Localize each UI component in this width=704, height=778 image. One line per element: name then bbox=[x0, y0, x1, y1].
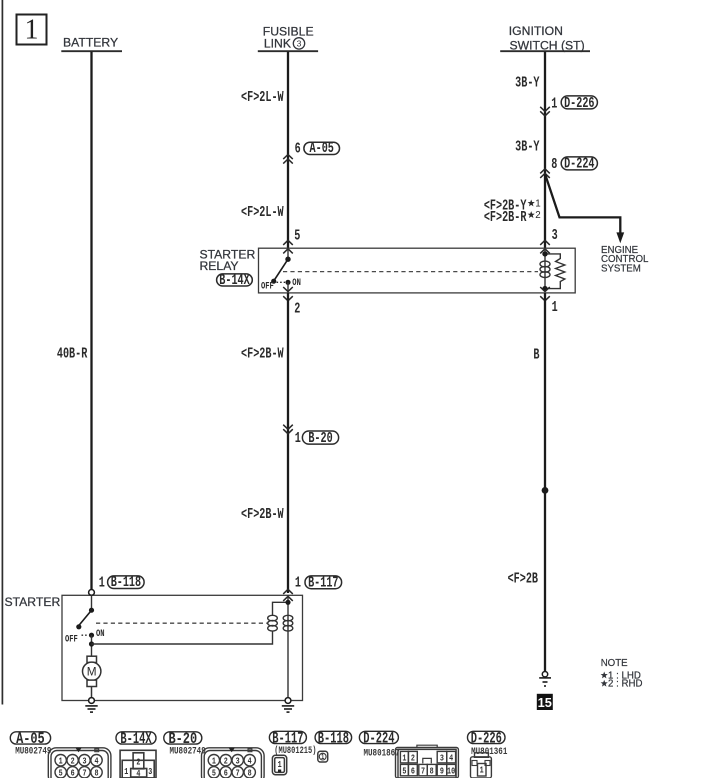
svg-text:STARTER: STARTER bbox=[5, 595, 61, 609]
svg-text:4: 4 bbox=[136, 769, 140, 778]
svg-text:3: 3 bbox=[82, 756, 86, 766]
svg-text:MU801867: MU801867 bbox=[364, 748, 400, 759]
svg-text:MU801361: MU801361 bbox=[471, 746, 507, 757]
svg-text:B-117: B-117 bbox=[308, 574, 338, 591]
svg-text:2: 2 bbox=[411, 754, 415, 764]
svg-text:<F>2L-W: <F>2L-W bbox=[241, 203, 284, 220]
svg-text:10: 10 bbox=[447, 767, 455, 777]
svg-text:6: 6 bbox=[71, 769, 75, 778]
svg-text:1: 1 bbox=[295, 429, 301, 446]
svg-text:5: 5 bbox=[402, 767, 406, 777]
svg-text:6: 6 bbox=[295, 140, 301, 157]
svg-text:IGNITION: IGNITION bbox=[509, 24, 563, 38]
svg-text:2: 2 bbox=[294, 300, 300, 317]
svg-text:1: 1 bbox=[278, 760, 282, 770]
svg-text:40B-R: 40B-R bbox=[57, 345, 88, 362]
svg-text:1: 1 bbox=[25, 15, 39, 46]
svg-text:6: 6 bbox=[224, 769, 228, 778]
svg-text:3: 3 bbox=[236, 756, 240, 766]
svg-text:8: 8 bbox=[551, 155, 557, 172]
svg-text:B-14X: B-14X bbox=[120, 730, 151, 748]
svg-text:2: 2 bbox=[136, 758, 140, 768]
svg-text:M: M bbox=[87, 665, 97, 679]
svg-text:2: 2 bbox=[535, 210, 540, 221]
svg-text:3B-Y: 3B-Y bbox=[515, 137, 540, 154]
svg-text:MU802749: MU802749 bbox=[170, 746, 206, 757]
svg-text:ON: ON bbox=[292, 277, 301, 289]
svg-text:BATTERY: BATTERY bbox=[63, 35, 118, 49]
svg-text:1: 1 bbox=[535, 199, 540, 210]
svg-text:SYSTEM: SYSTEM bbox=[601, 264, 641, 275]
svg-text:4: 4 bbox=[248, 756, 252, 766]
svg-text:MU802749: MU802749 bbox=[15, 746, 51, 757]
svg-text:ON: ON bbox=[96, 628, 105, 640]
svg-text:1: 1 bbox=[402, 754, 406, 764]
svg-text:4: 4 bbox=[449, 754, 453, 764]
svg-text:A-05: A-05 bbox=[310, 139, 334, 156]
svg-text:5: 5 bbox=[59, 769, 63, 778]
svg-text:8: 8 bbox=[248, 769, 252, 778]
svg-text:D-226: D-226 bbox=[564, 94, 594, 111]
svg-text:6: 6 bbox=[411, 767, 415, 777]
svg-text:<F>2B-W: <F>2B-W bbox=[241, 505, 284, 522]
svg-text:5: 5 bbox=[294, 227, 300, 244]
svg-text:D-224: D-224 bbox=[363, 730, 394, 748]
svg-text:8: 8 bbox=[94, 769, 98, 778]
svg-text:D-224: D-224 bbox=[564, 155, 595, 172]
svg-text:2: 2 bbox=[71, 756, 75, 766]
svg-text:<F>2B-R: <F>2B-R bbox=[484, 208, 527, 225]
svg-text:15: 15 bbox=[538, 695, 552, 710]
svg-text:1: 1 bbox=[212, 756, 216, 766]
svg-text:B-14X: B-14X bbox=[219, 271, 250, 288]
svg-text:3: 3 bbox=[552, 226, 558, 243]
svg-text:2: 2 bbox=[224, 756, 228, 766]
svg-text:5: 5 bbox=[212, 769, 216, 778]
svg-text:3: 3 bbox=[148, 767, 152, 777]
svg-text:B-20: B-20 bbox=[308, 429, 332, 446]
svg-text:7: 7 bbox=[82, 769, 86, 778]
svg-text:1: 1 bbox=[124, 767, 128, 777]
svg-text:1: 1 bbox=[295, 574, 301, 591]
svg-text:B-118: B-118 bbox=[318, 730, 349, 748]
svg-text:1: 1 bbox=[59, 756, 63, 766]
svg-text:<F>2B: <F>2B bbox=[508, 569, 539, 586]
svg-text:7: 7 bbox=[236, 769, 240, 778]
svg-text:3: 3 bbox=[297, 39, 302, 49]
svg-text:4: 4 bbox=[94, 756, 98, 766]
svg-text:B: B bbox=[533, 346, 539, 363]
svg-text:<F>2L-W: <F>2L-W bbox=[241, 88, 284, 105]
svg-text:D-226: D-226 bbox=[471, 730, 502, 748]
svg-text:OFF: OFF bbox=[65, 633, 78, 645]
svg-text:1: 1 bbox=[552, 298, 558, 315]
svg-text:9: 9 bbox=[440, 767, 444, 777]
svg-text:OFF: OFF bbox=[261, 281, 274, 293]
svg-text:3: 3 bbox=[440, 754, 444, 764]
svg-text:NOTE: NOTE bbox=[601, 658, 628, 669]
svg-text:LINK: LINK bbox=[264, 37, 291, 51]
svg-text:SWITCH (ST): SWITCH (ST) bbox=[510, 38, 585, 52]
svg-text:1: 1 bbox=[321, 753, 324, 762]
svg-text:<F>2B-W: <F>2B-W bbox=[241, 345, 284, 362]
svg-text:3B-Y: 3B-Y bbox=[515, 74, 540, 91]
svg-text:1: 1 bbox=[551, 95, 557, 112]
svg-text:8: 8 bbox=[430, 767, 434, 777]
svg-text:B-118: B-118 bbox=[111, 573, 141, 590]
svg-text:2 : RHD: 2 : RHD bbox=[608, 679, 642, 690]
svg-text:7: 7 bbox=[421, 767, 425, 777]
svg-text:1: 1 bbox=[99, 574, 105, 591]
svg-text:1: 1 bbox=[480, 766, 484, 776]
